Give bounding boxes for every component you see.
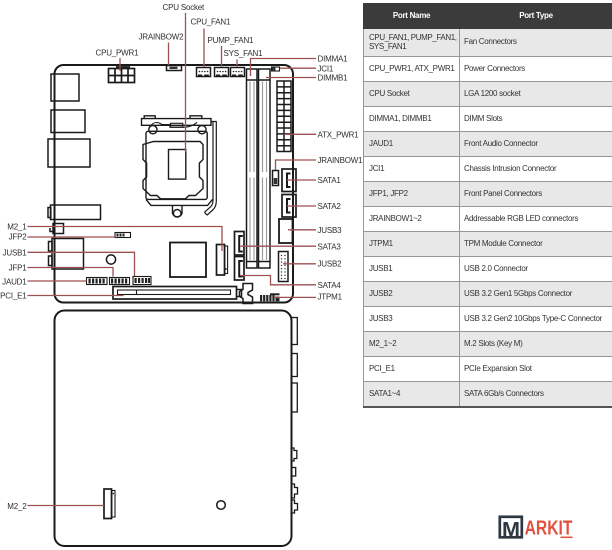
svg-text:M: M xyxy=(502,518,520,541)
svg-text:ARKIT: ARKIT xyxy=(525,517,573,540)
